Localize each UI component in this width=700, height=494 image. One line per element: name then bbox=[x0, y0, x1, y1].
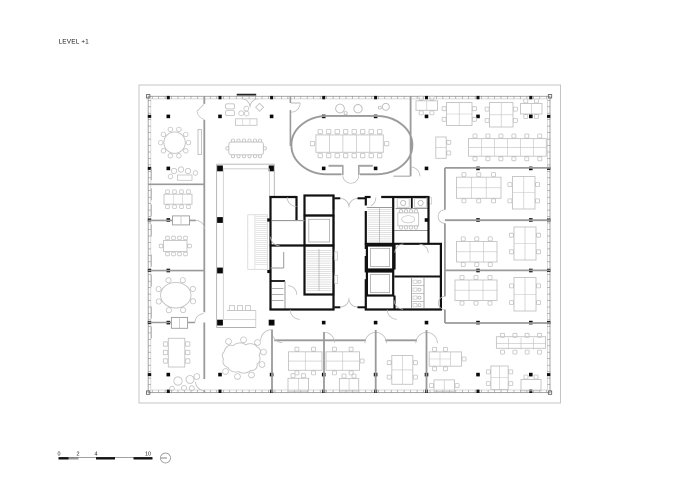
svg-text:4: 4 bbox=[95, 452, 98, 458]
svg-text:0: 0 bbox=[58, 452, 61, 458]
svg-text:LEVEL +1: LEVEL +1 bbox=[59, 39, 90, 46]
svg-text:2: 2 bbox=[77, 452, 80, 458]
svg-text:10: 10 bbox=[145, 452, 151, 458]
